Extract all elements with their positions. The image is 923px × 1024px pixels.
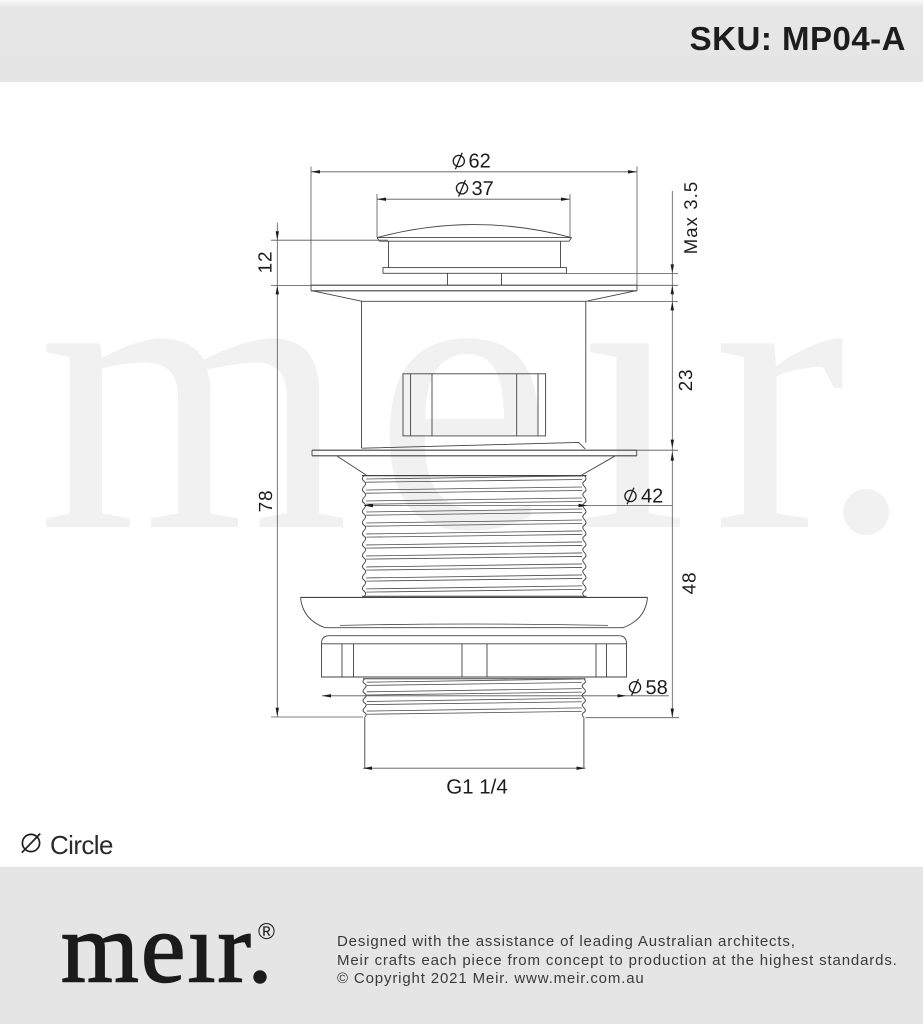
svg-text:12: 12 [256, 251, 277, 274]
svg-text:78: 78 [256, 490, 277, 513]
svg-text:®: ® [258, 918, 275, 944]
svg-text:meır.: meır. [61, 893, 275, 1004]
svg-text:37: 37 [472, 178, 494, 200]
svg-text:Max 3.5: Max 3.5 [680, 181, 701, 255]
svg-text:G1 1/4: G1 1/4 [446, 776, 508, 799]
svg-text:58: 58 [646, 677, 668, 699]
svg-text:48: 48 [680, 572, 701, 595]
svg-text:62: 62 [469, 151, 491, 173]
svg-text:42: 42 [641, 486, 663, 508]
svg-text:23: 23 [676, 369, 697, 392]
